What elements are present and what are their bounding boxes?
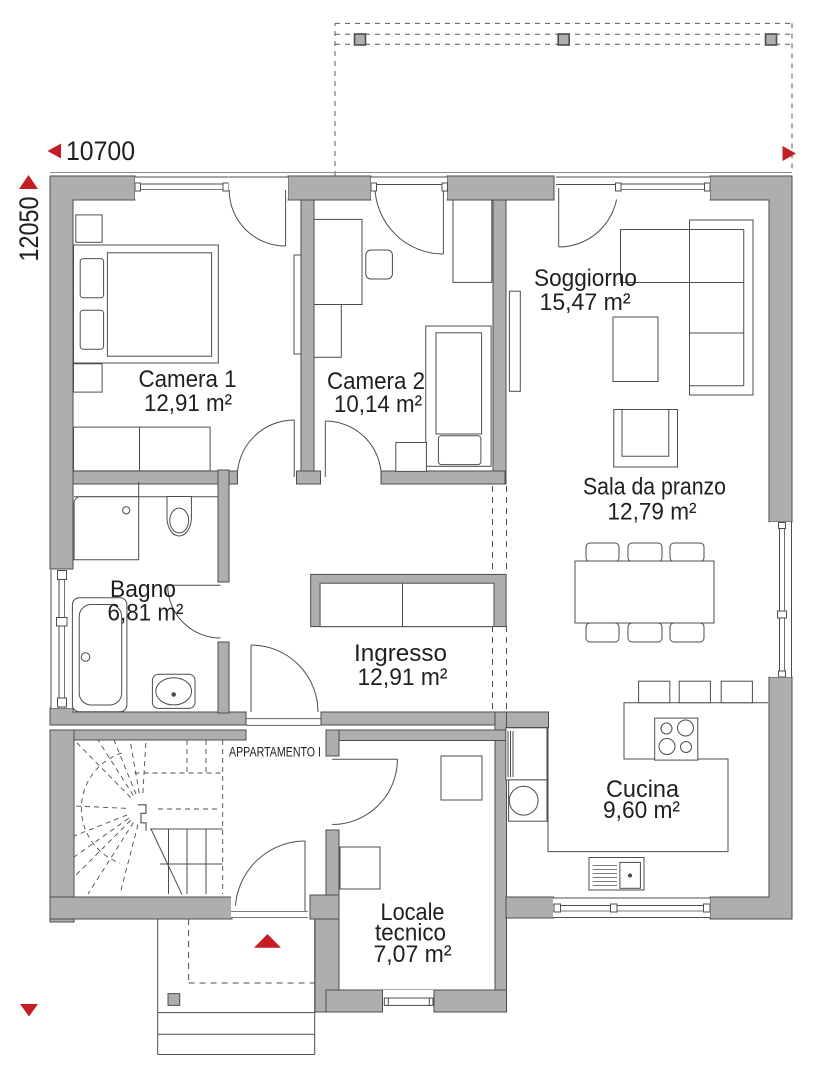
svg-text:12050: 12050	[14, 197, 44, 262]
svg-text:6,81 m²: 6,81 m²	[108, 600, 184, 627]
svg-text:10,14 m²: 10,14 m²	[334, 391, 422, 418]
svg-text:Camera 1: Camera 1	[139, 366, 237, 393]
svg-text:Soggiorno: Soggiorno	[534, 265, 637, 292]
svg-text:9,60 m²: 9,60 m²	[603, 797, 680, 824]
svg-text:Ingresso: Ingresso	[354, 640, 447, 667]
svg-text:7,07 m²: 7,07 m²	[374, 941, 452, 968]
svg-text:12,91 m²: 12,91 m²	[358, 664, 448, 691]
svg-text:10700: 10700	[66, 136, 135, 166]
svg-text:Sala da pranzo: Sala da pranzo	[583, 474, 726, 501]
svg-text:12,91 m²: 12,91 m²	[144, 390, 232, 417]
svg-text:15,47 m²: 15,47 m²	[540, 289, 631, 316]
svg-text:12,79 m²: 12,79 m²	[608, 499, 697, 526]
svg-text:APPARTAMENTO I: APPARTAMENTO I	[229, 745, 321, 760]
